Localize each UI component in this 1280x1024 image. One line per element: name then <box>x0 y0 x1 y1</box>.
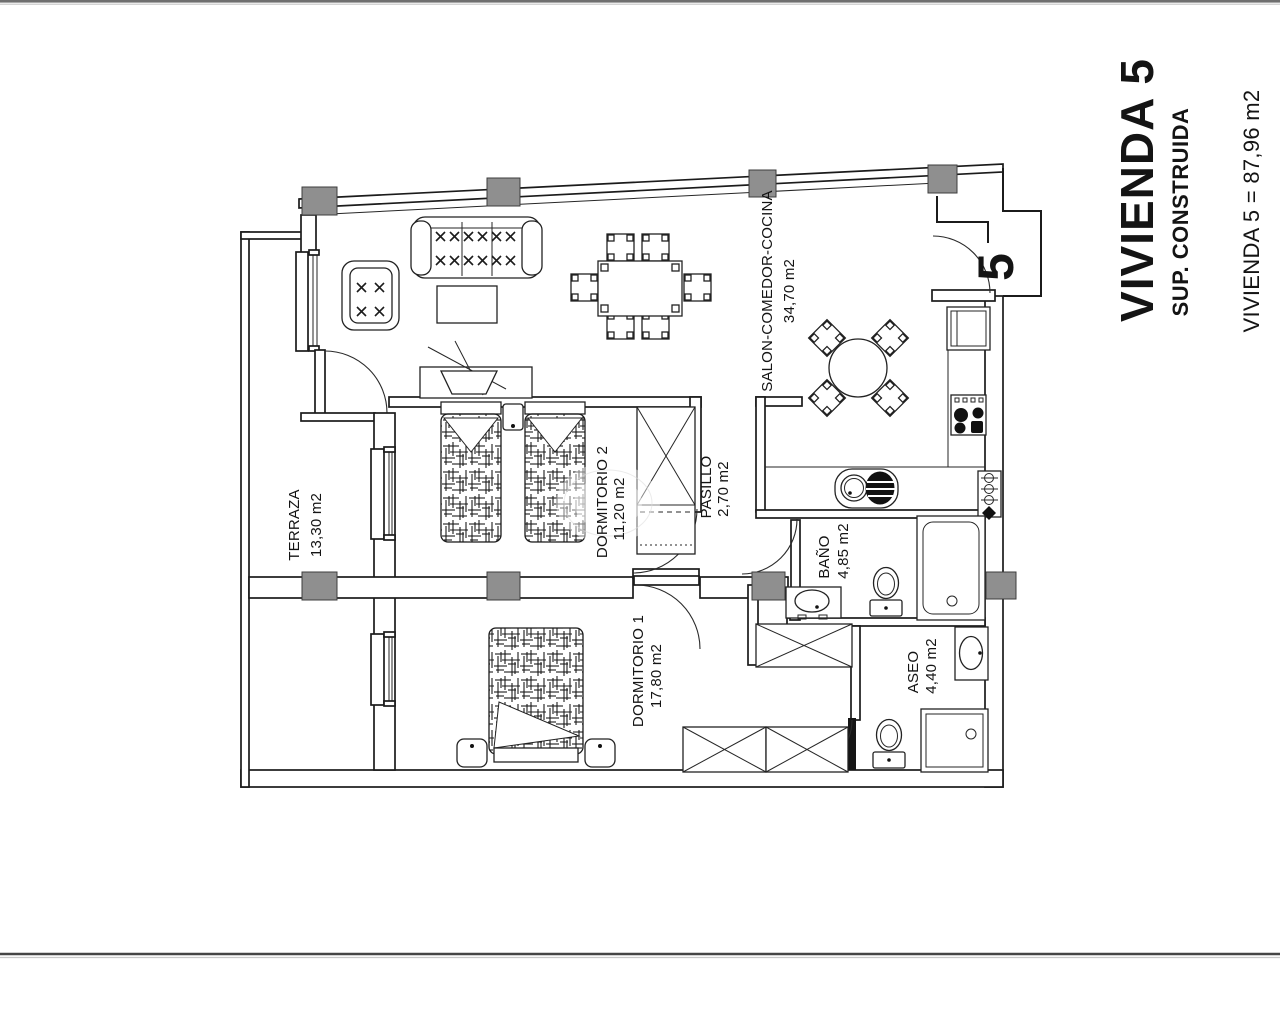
room-label-aseo: ASEO <box>905 651 922 693</box>
bathroom-vanity-sink <box>786 587 841 619</box>
column <box>302 187 337 215</box>
room-area-banio: 4,85 m2 <box>835 523 852 579</box>
bedroom1-nightstand-right <box>585 739 615 767</box>
page-top-rule <box>0 0 1280 4</box>
bedroom1-nightstand-left <box>457 739 487 767</box>
kitchen-table-set <box>809 320 909 417</box>
cooktop <box>951 395 986 435</box>
terrace-door <box>315 350 387 417</box>
room-area-salon: 34,70 m2 <box>781 259 798 323</box>
kitchen-sink <box>835 469 898 508</box>
shower <box>921 709 988 772</box>
room-area-aseo: 4,40 m2 <box>923 638 940 694</box>
bedroom2-nightstand <box>503 404 523 430</box>
tv-unit <box>420 341 532 398</box>
water-heater <box>978 471 1001 520</box>
fridge <box>947 307 990 350</box>
dining-table-set <box>571 234 711 339</box>
floorplan-drawing: TERRAZA 13,30 m2 SALON-COMEDOR-COCINA 34… <box>0 0 1280 1024</box>
bathtub <box>917 516 985 620</box>
hall-wardrobe <box>756 624 852 667</box>
title-unit: VIVIENDA 5 <box>1111 58 1163 322</box>
column <box>302 572 337 600</box>
room-area-dormitorio2: 11,20 m2 <box>611 477 628 540</box>
room-label-pasillo: PASILLO <box>698 456 715 519</box>
room-area-terraza: 13,30 m2 <box>308 493 325 557</box>
title-block: VIVIENDA 5 SUP. CONSTRUIDA VIVIENDA 5 = … <box>1111 58 1264 332</box>
column <box>986 572 1016 599</box>
room-label-dormitorio1: DORMITORIO 1 <box>630 615 647 727</box>
toilet-room-vanity-sink <box>955 627 988 680</box>
room-label-banio: BAÑO <box>816 535 833 578</box>
unit-number-label: 5 <box>968 253 1024 281</box>
room-label-dormitorio2: DORMITORIO 2 <box>594 446 611 558</box>
sofa <box>411 217 542 278</box>
bedroom1-wardrobe <box>683 727 848 772</box>
column <box>487 178 520 206</box>
column <box>928 165 957 193</box>
bathroom-toilet <box>870 568 902 617</box>
title-area-line: VIVIENDA 5 = 87,96 m2 <box>1239 90 1264 333</box>
bedroom1-bed <box>489 628 583 762</box>
column <box>752 572 785 600</box>
column <box>487 572 520 600</box>
coffee-table <box>437 286 497 323</box>
page-bottom-rule <box>0 954 1280 958</box>
room-label-salon: SALON-COMEDOR-COCINA <box>759 190 776 392</box>
title-subtitle: SUP. CONSTRUIDA <box>1168 108 1193 317</box>
toilet-room-toilet <box>873 720 905 769</box>
interior-walls <box>249 397 985 720</box>
room-area-dormitorio1: 17,80 m2 <box>648 644 665 708</box>
armchair <box>342 261 399 330</box>
room-label-terraza: TERRAZA <box>286 489 303 560</box>
bedroom2-bed-left <box>441 402 501 542</box>
room-area-pasillo: 2,70 m2 <box>715 461 732 517</box>
